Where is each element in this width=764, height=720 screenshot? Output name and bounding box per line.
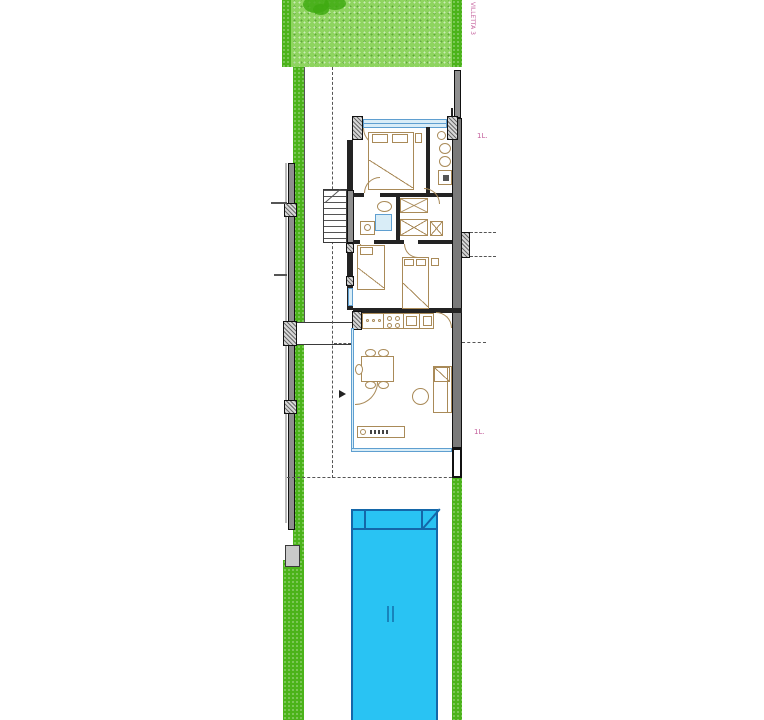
- kitchen-unit: [423, 316, 432, 326]
- nightstand: [415, 133, 422, 143]
- door-arc: [436, 312, 452, 328]
- gate-pier: [283, 321, 297, 346]
- wardrobe: [430, 221, 443, 236]
- stove-burner: [387, 323, 392, 328]
- corner-pier-top-right: [447, 116, 458, 140]
- pillow: [416, 259, 426, 266]
- sofa-back-line: [447, 367, 448, 412]
- chair: [365, 349, 376, 357]
- lawn-top-left-edge: [282, 0, 291, 67]
- glass-wall-bottom: [351, 448, 452, 452]
- dashed-tick: [462, 342, 486, 343]
- side-hedge-left-lower: [283, 560, 304, 720]
- counter-knob: [366, 319, 369, 322]
- wall-pier: [346, 243, 354, 253]
- sink-basin: [364, 224, 371, 231]
- stairs-side-wall: [347, 190, 354, 243]
- wardrobe: [400, 219, 428, 236]
- boundary-wall-left-upper: [288, 163, 295, 322]
- coffee-table: [412, 388, 429, 405]
- glass-wall-left: [351, 328, 354, 450]
- shower-icon: [375, 214, 392, 231]
- boundary-wall-left-lower: [288, 345, 295, 530]
- right-pillar-block: [461, 232, 470, 258]
- corner-pier-top-left: [352, 116, 363, 140]
- kitchen-sink: [406, 316, 417, 326]
- wall-tick: [274, 274, 287, 276]
- chair: [378, 381, 389, 389]
- counter-divider: [419, 313, 420, 329]
- counter-knob: [378, 319, 381, 322]
- terrace-border-line: [304, 67, 305, 322]
- pillow: [404, 259, 414, 266]
- wall-pier: [284, 400, 297, 414]
- pool-ladder-icon: [387, 606, 397, 622]
- ensuite-partition-wall: [426, 127, 430, 193]
- stove-burner: [395, 323, 400, 328]
- lawn-top-right-edge: [452, 0, 462, 67]
- pillow: [360, 247, 373, 255]
- pool-step-divider: [364, 510, 366, 529]
- sink-icon: [437, 131, 446, 140]
- left-window: [348, 288, 353, 306]
- site-label: VILLETTA 3: [469, 2, 476, 35]
- chair: [378, 349, 389, 357]
- dashed-tick: [470, 256, 496, 257]
- counter-divider: [383, 313, 384, 329]
- door-arc: [364, 177, 380, 193]
- washer-drum: [443, 175, 449, 181]
- bed-fold-line: [403, 283, 428, 307]
- wardrobe: [400, 198, 428, 213]
- window-band-top: [363, 119, 447, 128]
- door-arc: [404, 244, 418, 258]
- boundary-wall-right-top: [454, 70, 461, 118]
- sideboard-detail: [370, 430, 390, 434]
- door-gap: [364, 193, 380, 197]
- bidet-icon: [439, 156, 451, 167]
- door-arc: [355, 382, 378, 405]
- entry-walkway: [295, 322, 352, 345]
- entry-arrow-icon: [339, 390, 346, 398]
- stove-burner: [395, 316, 400, 321]
- dining-table: [361, 356, 394, 382]
- side-hedge-right: [452, 478, 462, 720]
- level-label-upper: 1L.: [477, 133, 488, 140]
- pillow: [372, 134, 388, 143]
- counter-knob: [372, 319, 375, 322]
- garden-gate-block: [285, 545, 300, 567]
- bush-icon: [313, 4, 329, 15]
- house-right-wall: [452, 118, 462, 448]
- counter-divider: [403, 313, 404, 329]
- dashed-tick: [470, 232, 496, 233]
- level-label-lower: 1L.: [474, 429, 485, 436]
- house-left-wall-upper: [347, 140, 353, 190]
- toilet-icon: [439, 143, 451, 154]
- exterior-stairs: [323, 189, 347, 243]
- wall-pier: [346, 276, 354, 286]
- bed-fold-line: [358, 268, 384, 288]
- toilet-icon: [377, 201, 392, 212]
- sideboard-knob: [360, 429, 366, 435]
- right-wall-end-block: [452, 448, 462, 478]
- setback-dashed-line: [332, 67, 333, 478]
- rear-boundary-dashed-line: [287, 477, 462, 478]
- walkway-dashed-stub: [334, 343, 351, 344]
- nightstand: [431, 258, 439, 266]
- stove-burner: [387, 316, 392, 321]
- wall-pier: [284, 203, 297, 217]
- pillow: [392, 134, 408, 143]
- wall-tick: [271, 202, 287, 204]
- floor-plan-canvas: VILLETTA 3 1L. 1L.: [0, 0, 764, 720]
- chair: [355, 364, 363, 375]
